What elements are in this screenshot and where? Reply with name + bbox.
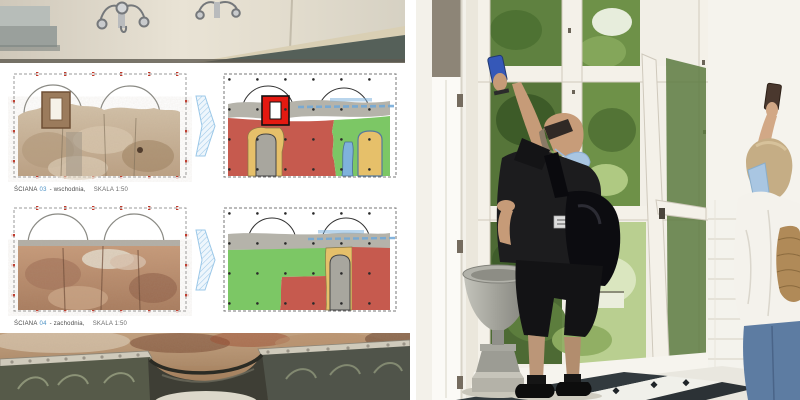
photo-stone-basin-relief — [0, 333, 410, 400]
survey-dot-grid — [224, 74, 396, 177]
wall-orientation: - wschodnia, — [50, 187, 86, 193]
interior-scene-art — [416, 0, 800, 400]
sock — [527, 375, 546, 385]
diagram-caption-wall-03: ŚCIANA03- wschodnia,SKALA 1:50 — [14, 187, 128, 194]
shoe — [515, 384, 554, 398]
leg — [528, 335, 545, 380]
wall-03-photo-elevation — [8, 70, 192, 182]
wall-03-stratigraphy-map — [218, 70, 402, 182]
wall-number: 03 — [40, 187, 47, 193]
diagram-caption-wall-04: ŚCIANA04- zachodnia,SKALA 1:50 — [14, 321, 127, 328]
hand — [766, 102, 778, 118]
photo-bottom-edge — [0, 59, 405, 63]
wall-scale: SKALA 1:50 — [93, 321, 127, 327]
wall-04-photo-elevation — [8, 204, 192, 316]
shoe — [556, 382, 592, 396]
photo-visitors-interior — [416, 0, 800, 400]
left-collage: ŚCIANA03- wschodnia,SKALA 1:50 — [0, 0, 414, 400]
wall-orientation: - zachodnia, — [50, 321, 85, 327]
news-photo-collage: ŚCIANA03- wschodnia,SKALA 1:50 — [0, 0, 800, 400]
wall-04-documentation: ŚCIANA04- zachodnia,SKALA 1:50 — [8, 204, 408, 326]
relief-panel-right — [260, 346, 410, 400]
wall-03-documentation: ŚCIANA03- wschodnia,SKALA 1:50 — [8, 70, 408, 192]
bathroom-photo-art — [0, 0, 405, 63]
door-header-wall — [432, 0, 462, 77]
window-handle — [659, 208, 665, 219]
deteriorated-masonry-photo — [18, 240, 180, 310]
window-niche — [42, 92, 70, 128]
left-hand — [497, 200, 515, 212]
wall-04-stratigraphy-map — [218, 204, 402, 316]
wall-label: ŚCIANA — [14, 187, 38, 193]
wall-label: ŚCIANA — [14, 321, 38, 327]
stone-basin-art — [0, 333, 410, 400]
transform-arrow-icon — [194, 70, 216, 182]
transform-arrow-icon — [194, 204, 216, 316]
photo-bathroom-faucets — [0, 0, 405, 63]
distant-house — [598, 292, 624, 308]
hand — [493, 73, 507, 91]
door-hinge — [457, 94, 463, 107]
door-hinge — [457, 376, 463, 389]
survey-dot-grid — [224, 208, 396, 311]
wall-number: 04 — [40, 321, 47, 327]
door-hinge — [457, 240, 463, 253]
wall-scale: SKALA 1:50 — [94, 187, 128, 193]
